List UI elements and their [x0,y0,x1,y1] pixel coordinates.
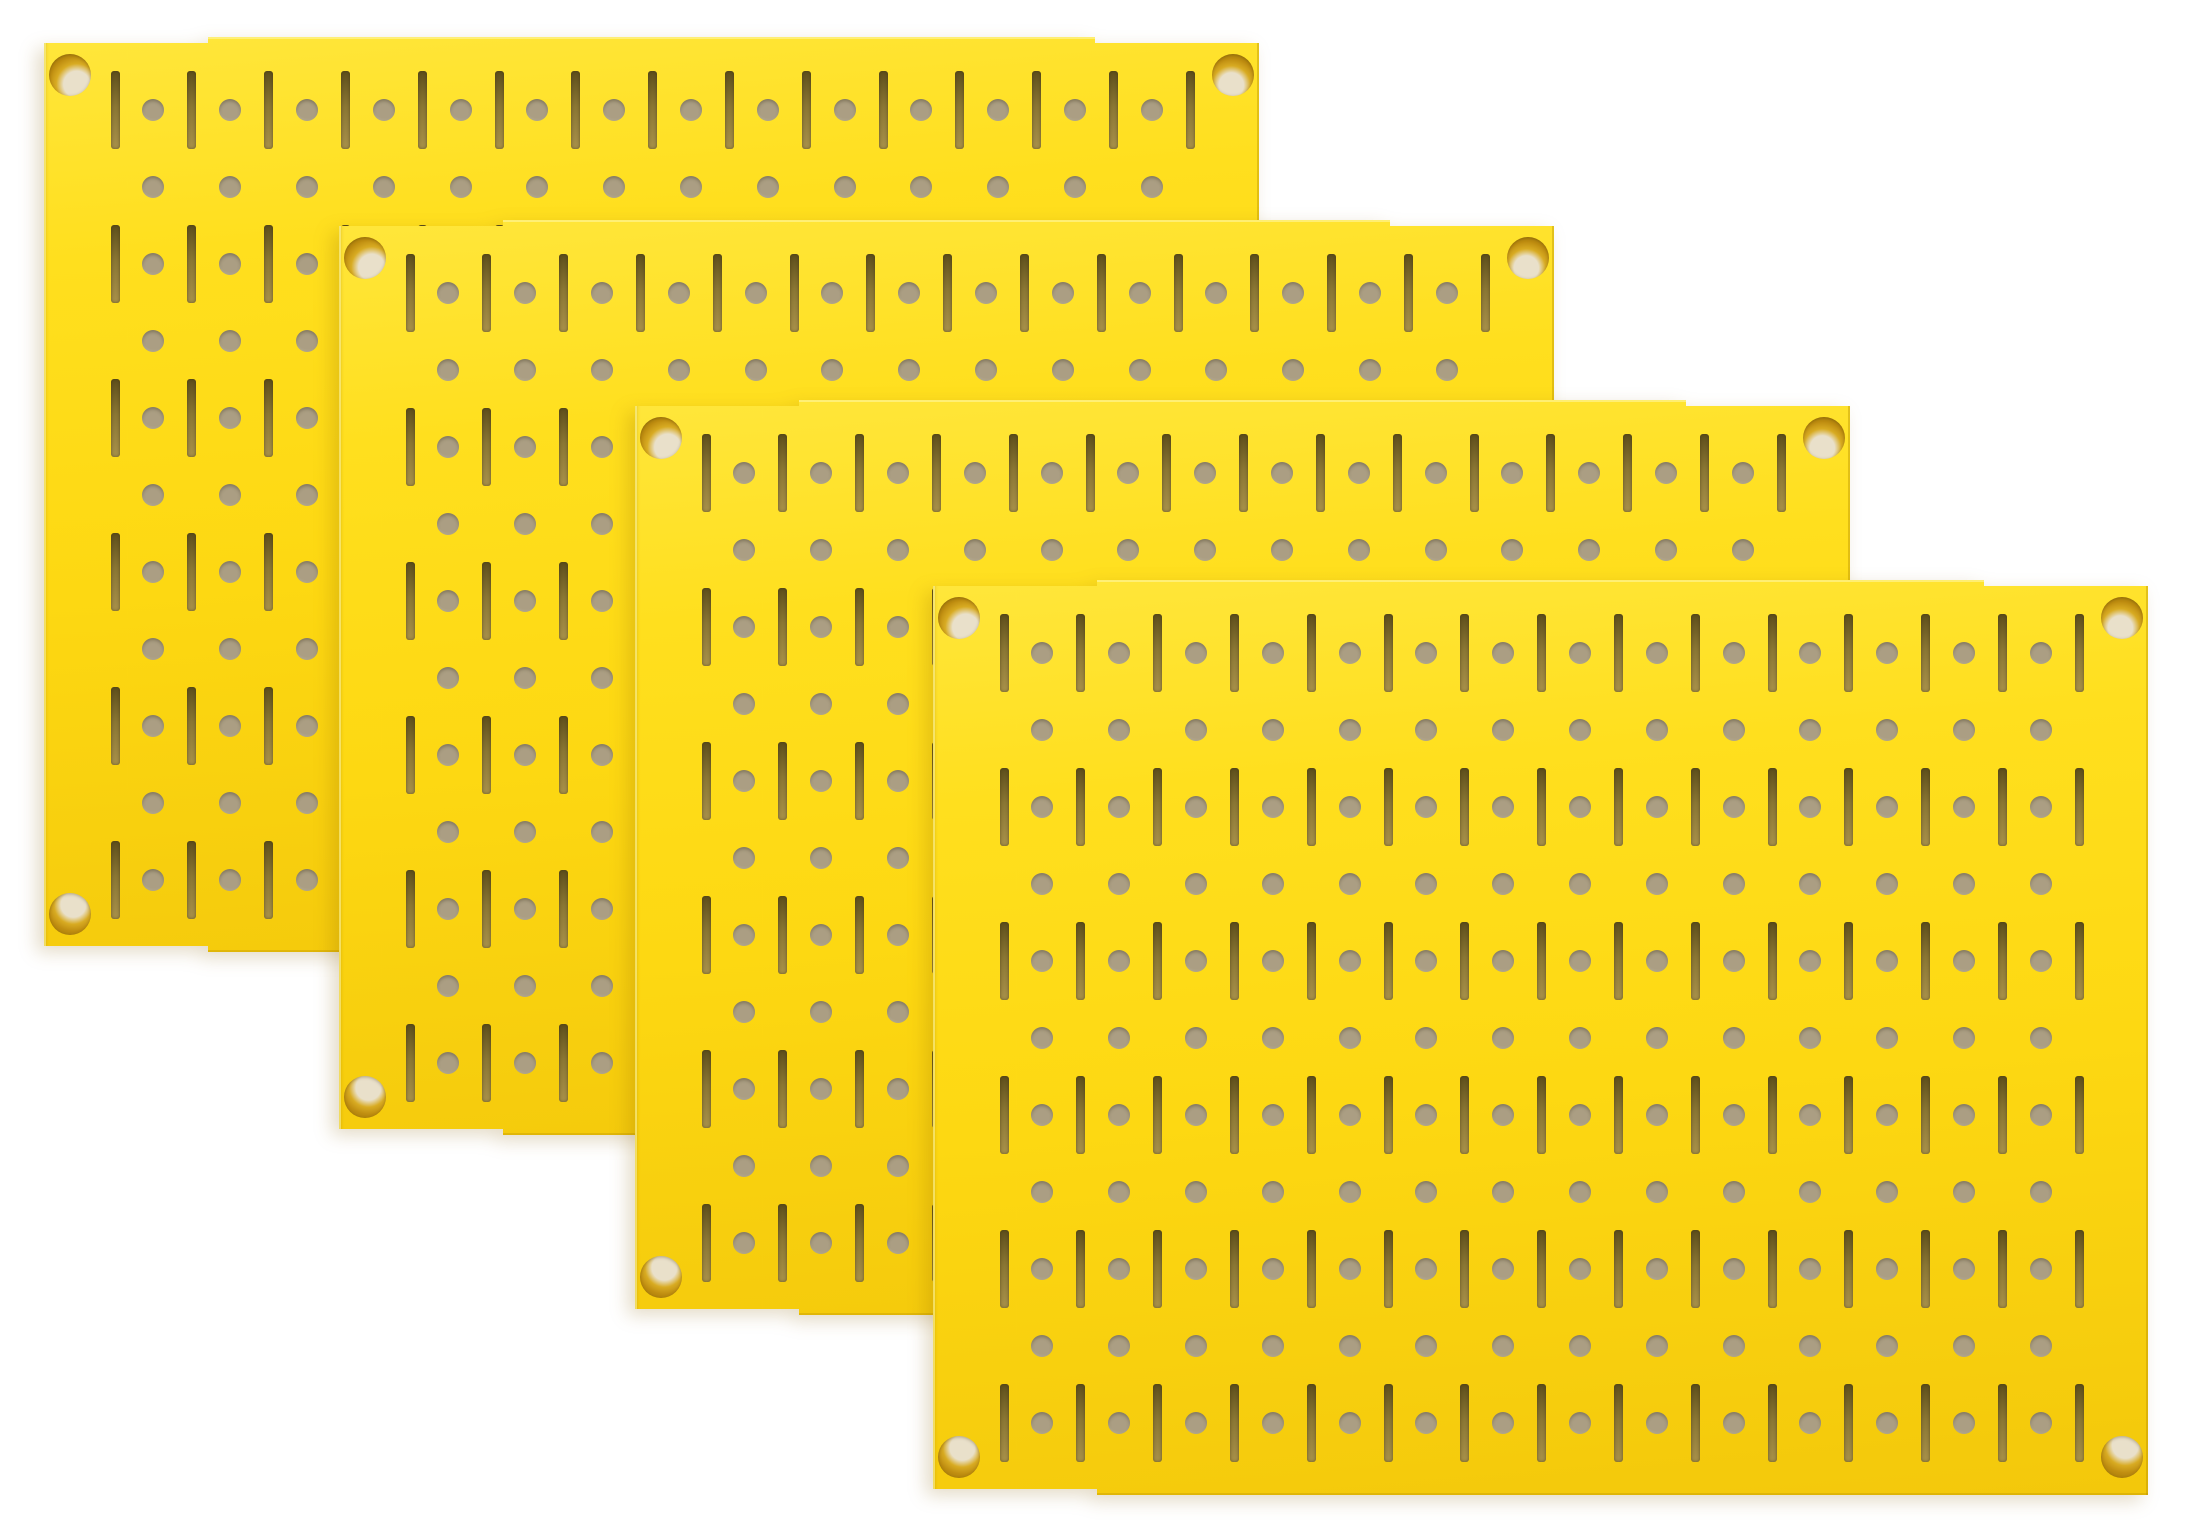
peg-hole [437,282,459,304]
peg-slot [1768,768,1777,846]
peg-slot [1460,922,1469,1000]
peg-hole [1953,1181,1975,1203]
peg-hole [1108,1412,1130,1434]
peg-slot [187,533,196,611]
peg-slot [1186,71,1195,149]
peg-hole [219,407,241,429]
peg-hole [887,539,909,561]
peg-slot [2075,1076,2084,1154]
peg-slot [1460,1230,1469,1308]
peg-slot [855,1204,864,1282]
peg-hole [975,359,997,381]
peg-hole [887,1001,909,1023]
peg-hole [296,176,318,198]
peg-hole [1185,1258,1207,1280]
peg-hole [296,638,318,660]
peg-slot [1614,1076,1623,1154]
peg-hole [1799,1335,1821,1357]
peg-hole [1262,873,1284,895]
peg-hole [142,792,164,814]
peg-slot [1614,922,1623,1000]
peg-slot [1998,1230,2007,1308]
peg-hole [450,99,472,121]
peg-hole [1569,1335,1591,1357]
peg-slot [187,225,196,303]
peg-hole [1205,359,1227,381]
peg-hole [1339,1104,1361,1126]
peg-hole [1876,1412,1898,1434]
peg-slot [943,254,952,332]
peg-hole [1415,1335,1437,1357]
peg-slot [1921,614,1930,692]
peg-hole [514,821,536,843]
peg-hole [514,667,536,689]
peg-hole [1415,950,1437,972]
peg-hole [1031,1335,1053,1357]
peg-slot [1844,768,1853,846]
peg-hole [910,176,932,198]
peg-slot [1768,1384,1777,1462]
peg-hole [591,975,613,997]
peg-hole [1339,1258,1361,1280]
peg-hole [219,792,241,814]
peg-slot [1844,922,1853,1000]
peg-hole [1876,873,1898,895]
peg-hole [514,282,536,304]
peg-hole [1339,796,1361,818]
peg-hole [591,359,613,381]
peg-hole [1141,176,1163,198]
peg-hole [680,176,702,198]
peg-hole [1953,1412,1975,1434]
peg-hole [1799,1258,1821,1280]
peg-slot [264,533,273,611]
corner-mounting-hole-bl [640,1256,682,1298]
peg-slot [855,742,864,820]
peg-hole [1041,462,1063,484]
peg-slot [1000,1230,1009,1308]
corner-mounting-hole-tr [1212,54,1254,96]
peg-hole [1031,950,1053,972]
peg-hole [1492,1181,1514,1203]
peg-hole [1569,1412,1591,1434]
peg-hole [1031,1412,1053,1434]
peg-slot [1998,768,2007,846]
peg-hole [142,869,164,891]
peg-hole [526,99,548,121]
peg-hole [296,407,318,429]
peg-hole [591,821,613,843]
peg-slot [1174,254,1183,332]
peg-slot [1921,1230,1930,1308]
peg-slot [1691,922,1700,1000]
peg-slot [1768,922,1777,1000]
peg-hole [1129,359,1151,381]
peg-hole [1339,1412,1361,1434]
peg-hole [2030,950,2052,972]
peg-hole [887,847,909,869]
peg-hole [1492,1412,1514,1434]
peg-hole [1108,796,1130,818]
peg-hole [591,436,613,458]
peg-hole [887,616,909,638]
peg-hole [219,638,241,660]
peg-hole [373,99,395,121]
peg-hole [296,561,318,583]
peg-hole [1185,950,1207,972]
peg-hole [1185,1027,1207,1049]
peg-slot [2075,614,2084,692]
peg-slot [1623,434,1632,512]
peg-hole [1646,642,1668,664]
peg-hole [1262,1412,1284,1434]
peg-hole [296,715,318,737]
peg-slot [1076,922,1085,1000]
peg-hole [1108,1104,1130,1126]
peg-slot [1384,768,1393,846]
peg-hole [1339,1181,1361,1203]
peg-hole [437,975,459,997]
peg-hole [437,1052,459,1074]
peg-hole [437,359,459,381]
pegboard-panel-4 [933,580,2148,1495]
peg-slot [778,896,787,974]
peg-hole [1348,539,1370,561]
peg-hole [1492,1335,1514,1357]
peg-hole [1876,1027,1898,1049]
peg-hole [757,176,779,198]
peg-slot [1307,614,1316,692]
peg-hole [733,693,755,715]
peg-slot [1998,1076,2007,1154]
corner-mounting-hole-bl [49,893,91,935]
peg-hole [1185,642,1207,664]
peg-slot [1998,1384,2007,1462]
peg-slot [802,71,811,149]
peg-slot [2075,1384,2084,1462]
peg-hole [1262,719,1284,741]
peg-hole [1141,99,1163,121]
corner-mounting-hole-tl [344,237,386,279]
peg-slot [482,1024,491,1102]
peg-slot [1614,1230,1623,1308]
peg-slot [1393,434,1402,512]
corner-mounting-hole-bl [938,1436,980,1478]
peg-slot [778,1204,787,1282]
peg-hole [1492,719,1514,741]
peg-slot [1844,614,1853,692]
peg-hole [810,1078,832,1100]
peg-slot [1844,1384,1853,1462]
peg-hole [2030,1181,2052,1203]
peg-slot [1537,768,1546,846]
peg-hole [2030,1335,2052,1357]
peg-hole [1185,719,1207,741]
peg-hole [1108,719,1130,741]
peg-slot [1691,1076,1700,1154]
peg-hole [680,99,702,121]
peg-hole [810,770,832,792]
peg-slot [1307,1076,1316,1154]
peg-slot [1032,71,1041,149]
peg-hole [1578,462,1600,484]
peg-slot [1076,1076,1085,1154]
peg-hole [296,869,318,891]
corner-mounting-hole-tl [640,417,682,459]
peg-hole [1646,950,1668,972]
peg-hole [1799,1027,1821,1049]
peg-slot [406,716,415,794]
peg-slot [1076,1384,1085,1462]
peg-hole [1129,282,1151,304]
peg-hole [887,462,909,484]
peg-slot [1481,254,1490,332]
peg-hole [591,667,613,689]
peg-hole [1723,873,1745,895]
peg-hole [733,462,755,484]
peg-slot [778,588,787,666]
peg-slot [1076,1230,1085,1308]
peg-hole [514,898,536,920]
peg-slot [482,870,491,948]
peg-hole [142,484,164,506]
peg-hole [2030,1258,2052,1280]
peg-slot [1384,1230,1393,1308]
peg-slot [1404,254,1413,332]
peg-slot [1460,1384,1469,1462]
peg-slot [725,71,734,149]
peg-hole [733,770,755,792]
peg-slot [1921,768,1930,846]
peg-hole [1492,873,1514,895]
peg-hole [1415,719,1437,741]
peg-hole [1876,1104,1898,1126]
peg-slot [1460,768,1469,846]
peg-slot [111,71,120,149]
peg-hole [219,484,241,506]
peg-hole [1415,1412,1437,1434]
peg-slot [1230,768,1239,846]
peg-hole [810,847,832,869]
peg-slot [648,71,657,149]
peg-hole [450,176,472,198]
peg-hole [745,282,767,304]
peg-slot [482,562,491,640]
peg-slot [406,562,415,640]
peg-hole [1425,539,1447,561]
peg-slot [855,434,864,512]
peg-hole [1041,539,1063,561]
peg-slot [1546,434,1555,512]
pegboard-panel-4-surface [933,580,2148,1495]
peg-slot [1537,1076,1546,1154]
corner-mounting-hole-tl [938,597,980,639]
peg-slot [1307,1384,1316,1462]
peg-hole [1359,359,1381,381]
peg-hole [437,436,459,458]
peg-slot [111,533,120,611]
peg-slot [1230,1384,1239,1462]
peg-hole [296,792,318,814]
peg-hole [964,462,986,484]
peg-hole [757,99,779,121]
peg-hole [1262,950,1284,972]
peg-hole [1108,1181,1130,1203]
peg-hole [1953,719,1975,741]
peg-hole [821,282,843,304]
peg-hole [514,744,536,766]
peg-hole [1415,1181,1437,1203]
peg-hole [1348,462,1370,484]
peg-hole [603,176,625,198]
peg-hole [1646,1335,1668,1357]
peg-hole [1953,642,1975,664]
peg-hole [1031,796,1053,818]
peg-hole [733,1001,755,1023]
peg-slot [1000,922,1009,1000]
peg-hole [591,1052,613,1074]
peg-slot [1250,254,1259,332]
peg-slot [559,254,568,332]
peg-hole [1185,796,1207,818]
peg-hole [1108,1335,1130,1357]
peg-hole [1646,1104,1668,1126]
peg-hole [1799,642,1821,664]
peg-hole [1205,282,1227,304]
peg-hole [810,616,832,638]
peg-slot [1153,614,1162,692]
peg-hole [1185,1335,1207,1357]
peg-slot [1768,1230,1777,1308]
peg-hole [1492,796,1514,818]
peg-hole [887,924,909,946]
peg-hole [1723,1027,1745,1049]
peg-hole [1799,796,1821,818]
peg-hole [142,253,164,275]
pegboard-product-photo [0,0,2189,1530]
peg-slot [932,434,941,512]
peg-hole [1492,1027,1514,1049]
peg-slot [1777,434,1786,512]
peg-hole [1723,1258,1745,1280]
peg-hole [1492,1104,1514,1126]
peg-hole [296,99,318,121]
peg-hole [733,616,755,638]
peg-slot [855,1050,864,1128]
peg-hole [437,821,459,843]
corner-mounting-hole-tr [1803,417,1845,459]
peg-hole [2030,1104,2052,1126]
peg-hole [1569,873,1591,895]
peg-slot [1153,922,1162,1000]
peg-hole [1262,1104,1284,1126]
peg-slot [1998,614,2007,692]
peg-slot [264,841,273,919]
peg-slot [1097,254,1106,332]
peg-hole [1953,1335,1975,1357]
peg-slot [1537,1384,1546,1462]
peg-slot [1691,614,1700,692]
peg-hole [142,638,164,660]
peg-hole [219,330,241,352]
peg-hole [2030,796,2052,818]
peg-slot [1844,1230,1853,1308]
peg-slot [2075,922,2084,1000]
peg-hole [1436,359,1458,381]
peg-hole [964,539,986,561]
peg-hole [1415,642,1437,664]
peg-hole [1262,1335,1284,1357]
peg-hole [1646,1258,1668,1280]
peg-hole [1185,1181,1207,1203]
peg-slot [264,225,273,303]
corner-mounting-hole-tl [49,54,91,96]
peg-slot [1614,1384,1623,1462]
peg-hole [1052,282,1074,304]
peg-hole [1646,796,1668,818]
peg-hole [1262,1027,1284,1049]
peg-slot [418,71,427,149]
peg-hole [2030,642,2052,664]
peg-hole [1262,796,1284,818]
peg-slot [1230,1076,1239,1154]
peg-hole [1723,642,1745,664]
peg-hole [603,99,625,121]
peg-slot [1000,1384,1009,1462]
peg-hole [1194,462,1216,484]
peg-hole [810,539,832,561]
peg-hole [1876,796,1898,818]
peg-slot [406,408,415,486]
peg-slot [1691,1230,1700,1308]
peg-hole [219,176,241,198]
peg-hole [514,436,536,458]
peg-hole [887,693,909,715]
peg-hole [1262,642,1284,664]
peg-hole [1569,1027,1591,1049]
peg-hole [1799,1104,1821,1126]
peg-hole [437,590,459,612]
peg-hole [2030,1412,2052,1434]
peg-hole [1436,282,1458,304]
peg-hole [1655,462,1677,484]
peg-hole [1425,462,1447,484]
peg-hole [437,667,459,689]
peg-slot [187,841,196,919]
peg-hole [1732,539,1754,561]
peg-slot [1844,1076,1853,1154]
peg-slot [1086,434,1095,512]
peg-slot [778,742,787,820]
peg-slot [187,687,196,765]
peg-slot [1327,254,1336,332]
peg-slot [111,687,120,765]
peg-hole [1569,642,1591,664]
peg-slot [264,71,273,149]
peg-slot [1768,614,1777,692]
peg-hole [437,513,459,535]
peg-slot [702,742,711,820]
peg-hole [1569,1181,1591,1203]
peg-hole [526,176,548,198]
peg-hole [142,715,164,737]
peg-hole [142,176,164,198]
peg-hole [142,330,164,352]
peg-hole [1339,642,1361,664]
peg-slot [264,379,273,457]
peg-hole [1492,1258,1514,1280]
peg-hole [437,744,459,766]
